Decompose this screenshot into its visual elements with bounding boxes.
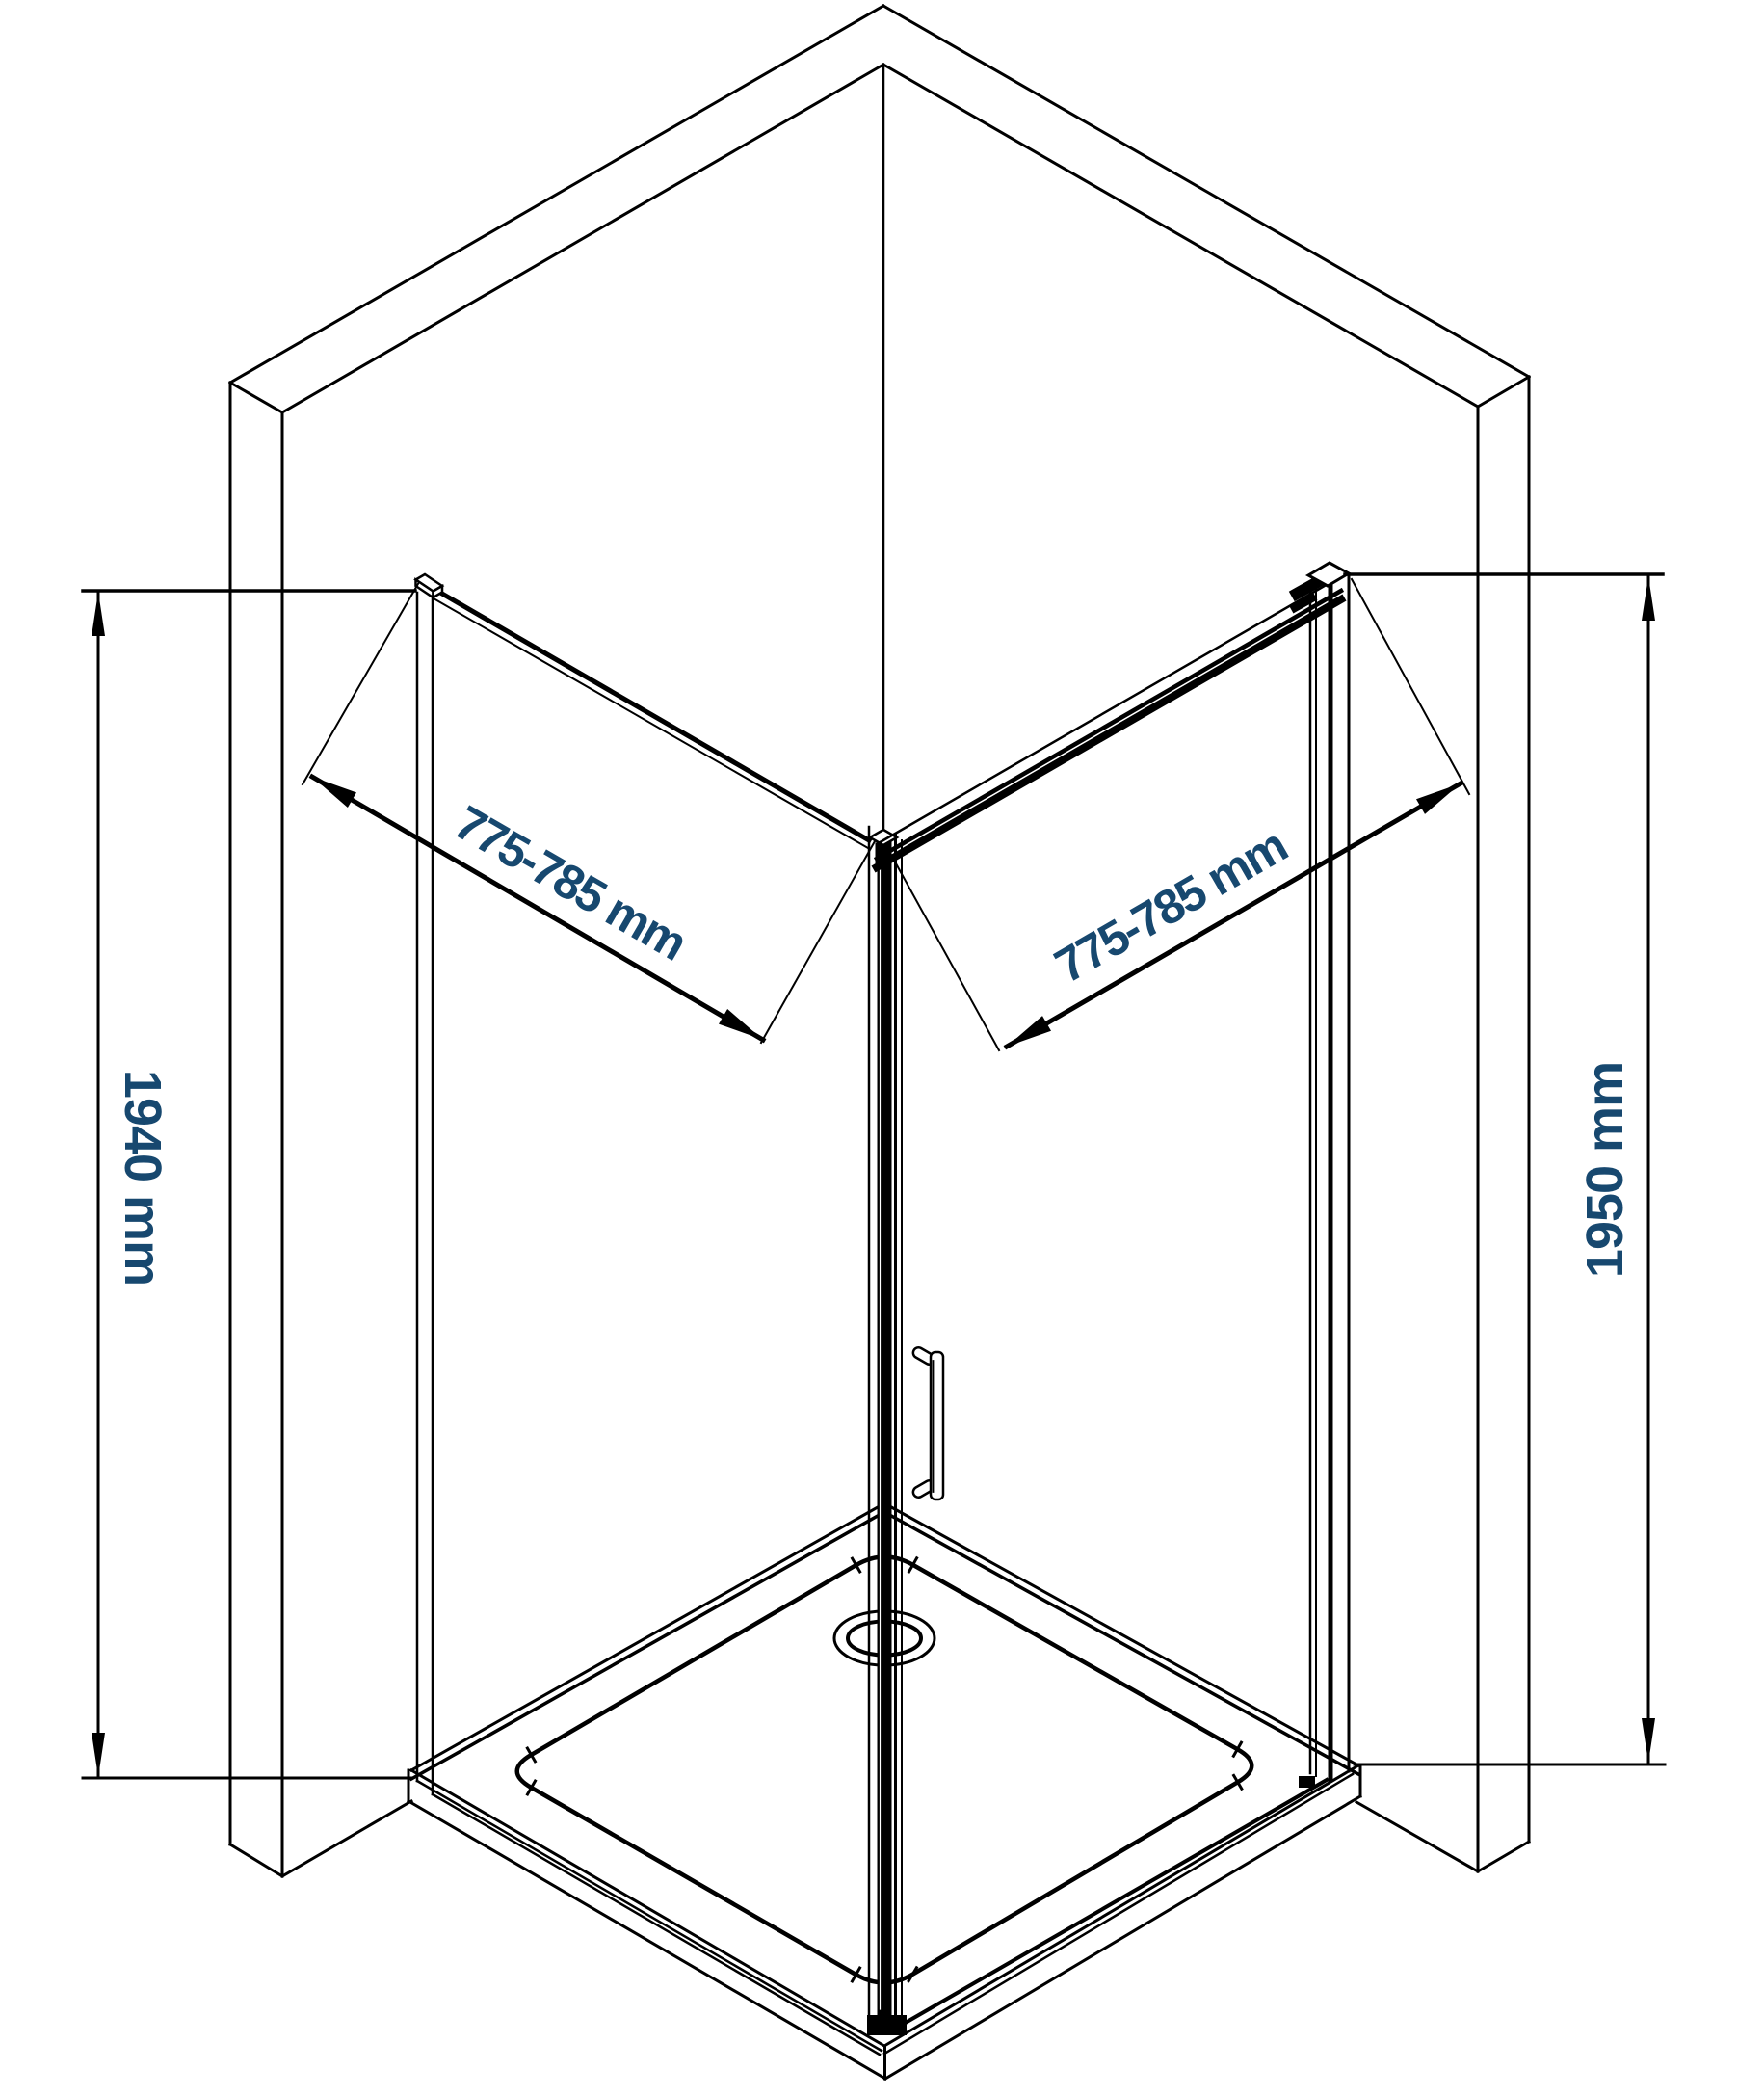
svg-text:1940 mm: 1940 mm [114,1070,171,1286]
svg-text:1950 mm: 1950 mm [1576,1062,1634,1278]
